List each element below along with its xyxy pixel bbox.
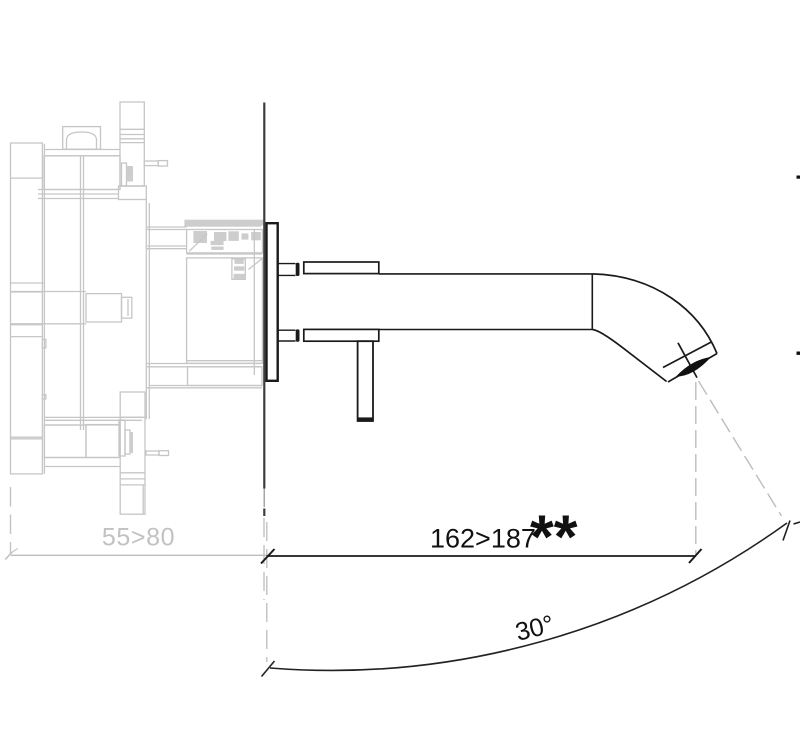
svg-text:**: ** — [530, 503, 578, 571]
svg-text:55>80: 55>80 — [102, 524, 175, 552]
svg-text:162>187: 162>187 — [430, 524, 536, 554]
